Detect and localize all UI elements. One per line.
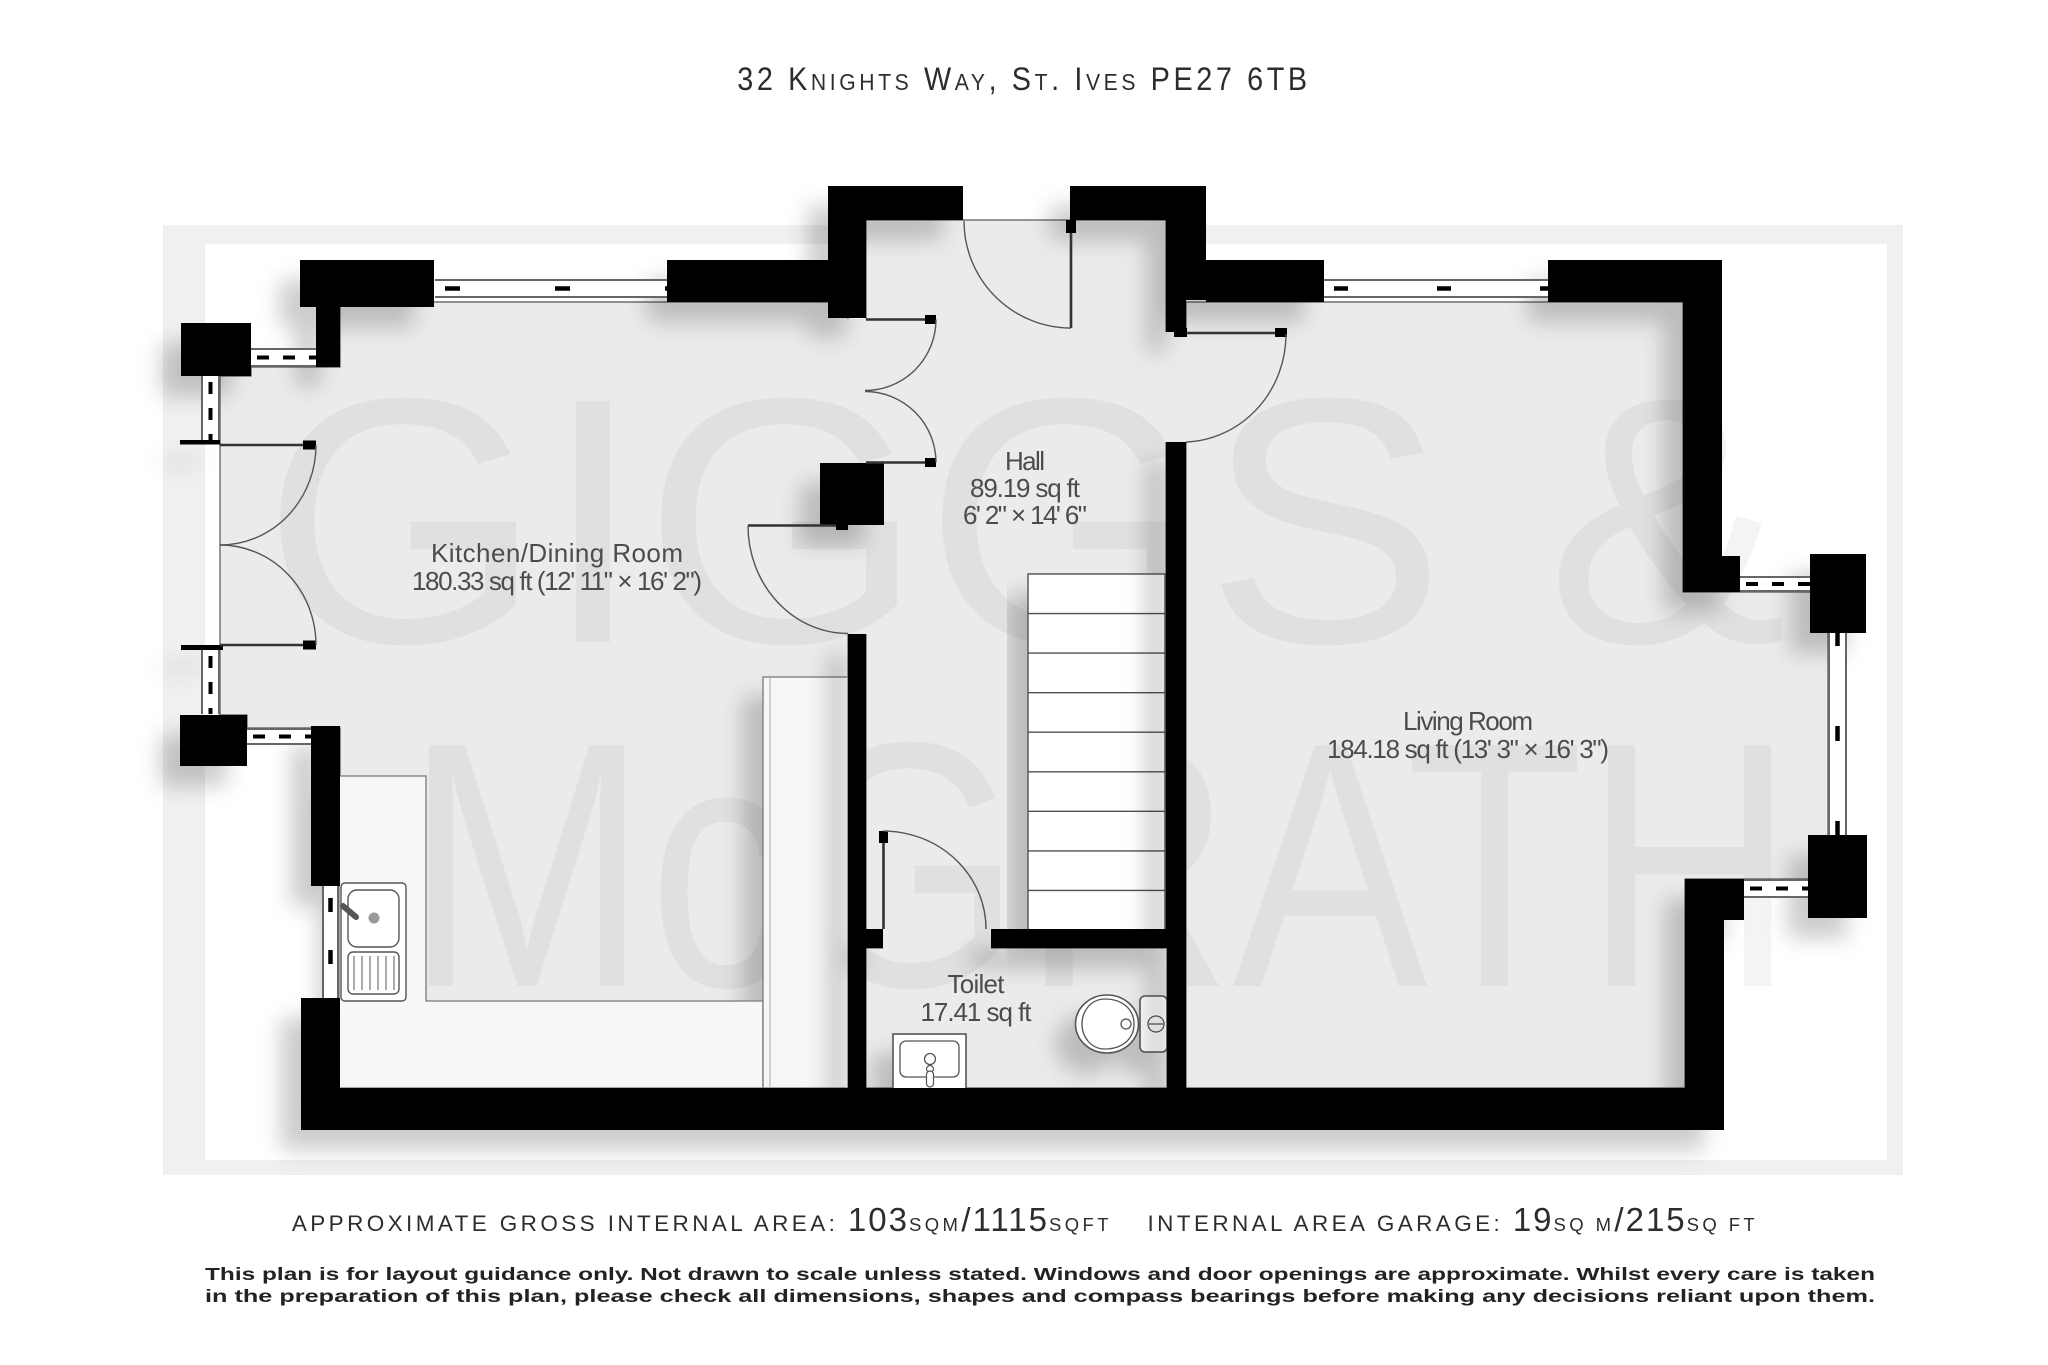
svg-text:6' 2" × 14' 6": 6' 2" × 14' 6" <box>963 500 1087 530</box>
svg-text:This plan is for layout guidan: This plan is for layout guidance only. N… <box>205 1264 1875 1284</box>
svg-text:180.33 sq ft (12' 11" × 16' 2": 180.33 sq ft (12' 11" × 16' 2") <box>412 566 702 596</box>
svg-text:Kitchen/Dining Room: Kitchen/Dining Room <box>431 538 683 568</box>
svg-text:89.19 sq ft: 89.19 sq ft <box>970 473 1081 503</box>
svg-text:17.41 sq ft: 17.41 sq ft <box>921 997 1033 1027</box>
svg-text:Toilet: Toilet <box>948 969 1006 999</box>
svg-text:184.18 sq ft (13' 3" × 16' 3"): 184.18 sq ft (13' 3" × 16' 3") <box>1327 734 1609 764</box>
svg-text:in the preparation of this pla: in the preparation of this plan, please … <box>205 1286 1875 1306</box>
svg-text:Living Room: Living Room <box>1403 706 1533 736</box>
svg-text:Hall: Hall <box>1005 446 1045 476</box>
